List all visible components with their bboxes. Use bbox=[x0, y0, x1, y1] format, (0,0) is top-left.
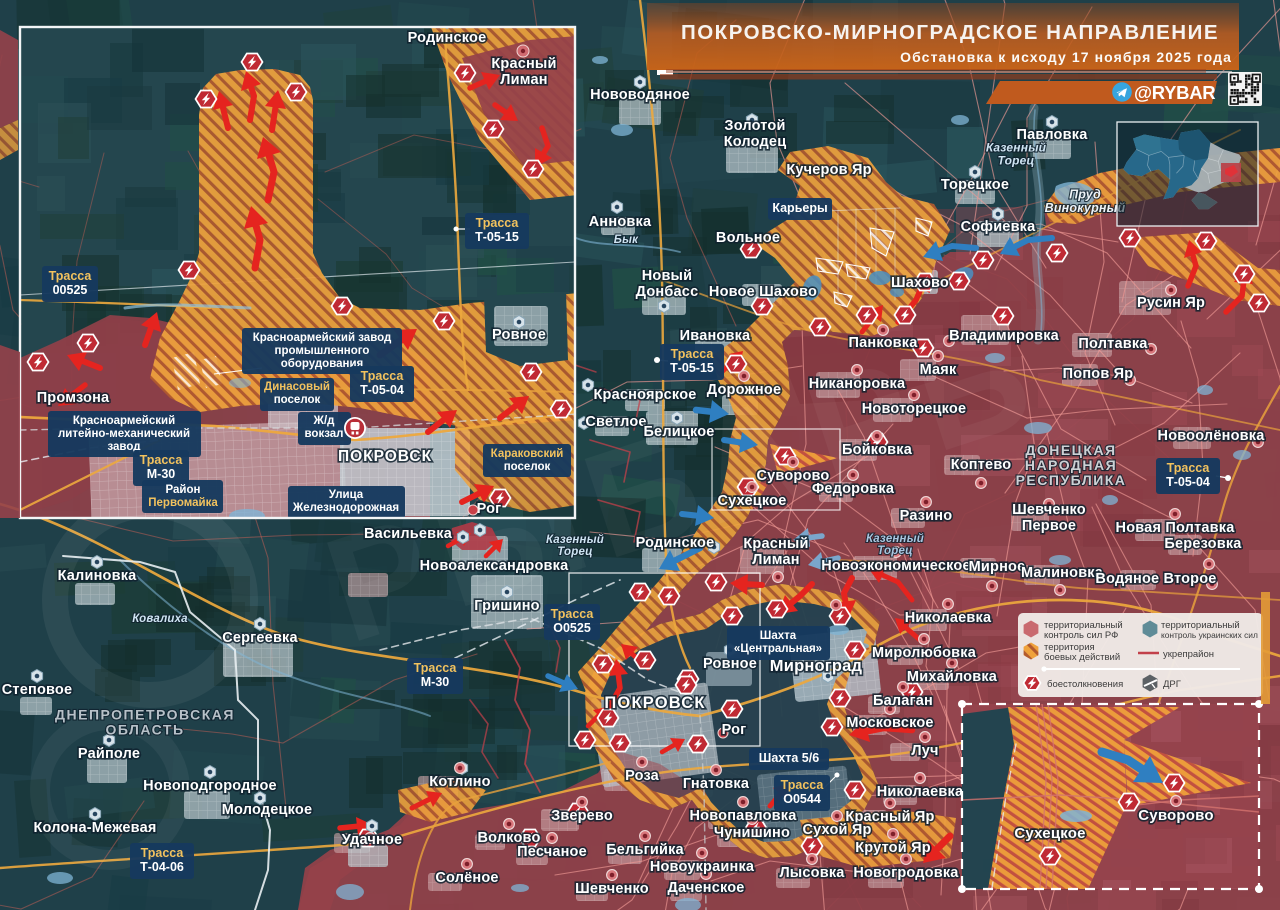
svg-text:Трасса: Трасса bbox=[551, 607, 595, 621]
svg-text:Новый: Новый bbox=[642, 268, 693, 284]
svg-text:Обстановка к исходу 17 ноября: Обстановка к исходу 17 ноября 2025 года bbox=[900, 49, 1232, 65]
svg-text:Красный: Красный bbox=[491, 56, 556, 72]
svg-text:Новоподгородное: Новоподгородное bbox=[143, 778, 277, 794]
svg-text:Нововодяное: Нововодяное bbox=[590, 87, 690, 103]
svg-text:Новоукраинка: Новоукраинка bbox=[650, 859, 755, 875]
svg-text:Новоалександровка: Новоалександровка bbox=[420, 558, 569, 574]
svg-text:ПОКРОВСК: ПОКРОВСК bbox=[604, 694, 705, 712]
svg-text:Колодец: Колодец bbox=[724, 134, 787, 150]
svg-text:Трасса: Трасса bbox=[140, 453, 184, 467]
svg-text:Трасса: Трасса bbox=[414, 661, 458, 675]
svg-text:Бык: Бык bbox=[614, 234, 639, 246]
svg-text:Коптево: Коптево bbox=[951, 457, 1012, 473]
svg-text:Т-05-04: Т-05-04 bbox=[360, 383, 404, 397]
svg-text:Железнодорожная: Железнодорожная bbox=[292, 502, 399, 514]
svg-text:Бельгийка: Бельгийка bbox=[606, 842, 684, 858]
svg-text:Николаевка: Николаевка bbox=[877, 784, 964, 800]
svg-text:Миролюбовка: Миролюбовка bbox=[872, 645, 977, 661]
svg-text:Калиновка: Калиновка bbox=[58, 568, 138, 584]
svg-text:Новое Шахово: Новое Шахово bbox=[709, 284, 817, 300]
svg-text:Балаган: Балаган bbox=[873, 693, 933, 709]
svg-text:Васильевка: Васильевка bbox=[364, 526, 453, 542]
svg-text:контроль сил РФ: контроль сил РФ bbox=[1044, 630, 1118, 641]
svg-text:Казенный: Казенный bbox=[986, 141, 1047, 155]
svg-text:М-30: М-30 bbox=[147, 467, 176, 481]
svg-text:Луч: Луч bbox=[911, 743, 938, 759]
svg-text:ДОНЕЦКАЯ: ДОНЕЦКАЯ bbox=[1025, 442, 1116, 458]
svg-text:Золотой: Золотой bbox=[724, 118, 785, 134]
svg-text:поселок: поселок bbox=[274, 394, 321, 406]
svg-text:Кучеров Яр: Кучеров Яр bbox=[786, 162, 871, 178]
svg-text:Рог: Рог bbox=[722, 722, 747, 738]
svg-text:Торецкое: Торецкое bbox=[941, 177, 1009, 193]
svg-text:Шахово: Шахово bbox=[891, 275, 949, 291]
svg-text:Гнатовка: Гнатовка bbox=[683, 776, 750, 792]
svg-text:Трасса: Трасса bbox=[49, 269, 93, 283]
svg-text:Т-05-15: Т-05-15 bbox=[670, 361, 714, 375]
svg-text:О0544: О0544 bbox=[783, 792, 821, 806]
svg-text:Т-05-15: Т-05-15 bbox=[475, 230, 519, 244]
svg-text:Суворово: Суворово bbox=[1138, 807, 1213, 824]
svg-text:Казенный: Казенный bbox=[546, 534, 604, 546]
svg-text:Анновка: Анновка bbox=[589, 214, 652, 230]
svg-text:«Центральная»: «Центральная» bbox=[734, 643, 822, 655]
svg-text:Даченское: Даченское bbox=[667, 880, 744, 896]
svg-text:Чунишино: Чунишино bbox=[714, 825, 790, 841]
svg-text:Федоровка: Федоровка bbox=[812, 481, 895, 497]
svg-text:Динасовый: Динасовый bbox=[264, 381, 330, 393]
svg-text:Сухецкое: Сухецкое bbox=[1014, 825, 1085, 842]
svg-text:Сергеевка: Сергеевка bbox=[222, 630, 298, 646]
svg-text:Водяное Второе: Водяное Второе bbox=[1095, 571, 1216, 587]
svg-text:Рог: Рог bbox=[477, 501, 502, 517]
svg-text:Шевченко: Шевченко bbox=[1012, 502, 1086, 518]
svg-text:Улица: Улица bbox=[329, 489, 364, 501]
svg-text:Бойковка: Бойковка bbox=[842, 442, 913, 458]
svg-text:укрепрайон: укрепрайон bbox=[1163, 649, 1214, 660]
svg-text:Сухецкое: Сухецкое bbox=[718, 493, 787, 509]
svg-text:00525: 00525 bbox=[53, 283, 88, 297]
svg-text:Шевченко: Шевченко bbox=[575, 881, 649, 897]
svg-text:Трасса: Трасса bbox=[671, 347, 715, 361]
svg-text:литейно-механический: литейно-механический bbox=[58, 428, 190, 440]
svg-text:Вольное: Вольное bbox=[716, 230, 780, 246]
svg-text:Новогродовка: Новогродовка bbox=[853, 865, 959, 881]
svg-text:поселок: поселок bbox=[504, 461, 551, 473]
svg-text:Песчаное: Песчаное bbox=[517, 844, 587, 860]
svg-text:НАРОДНАЯ: НАРОДНАЯ bbox=[1025, 457, 1117, 473]
svg-text:Лиман: Лиман bbox=[752, 552, 799, 568]
svg-text:Караковский: Караковский bbox=[491, 448, 564, 460]
svg-text:Лиман: Лиман bbox=[500, 72, 547, 88]
svg-text:Донбасс: Донбасс bbox=[636, 284, 699, 300]
svg-text:Родинское: Родинское bbox=[636, 535, 715, 551]
svg-text:Новоолёновка: Новоолёновка bbox=[1158, 428, 1266, 444]
svg-text:боестолкновения: боестолкновения bbox=[1047, 679, 1123, 690]
svg-text:Пруд: Пруд bbox=[1069, 187, 1101, 201]
svg-text:Трасса: Трасса bbox=[361, 369, 405, 383]
svg-text:Торец: Торец bbox=[877, 545, 912, 557]
svg-text:Малиновка: Малиновка bbox=[1021, 565, 1104, 581]
svg-text:Шахта: Шахта bbox=[760, 630, 797, 642]
svg-text:Разино: Разино bbox=[900, 508, 953, 524]
svg-text:М-30: М-30 bbox=[421, 675, 450, 689]
svg-text:Крутой Яр: Крутой Яр bbox=[855, 840, 931, 856]
svg-text:промышленного: промышленного bbox=[275, 345, 370, 357]
svg-text:Зверево: Зверево bbox=[551, 808, 613, 824]
svg-text:ДРГ: ДРГ bbox=[1163, 679, 1181, 690]
svg-text:Красноармейский: Красноармейский bbox=[73, 415, 175, 427]
svg-text:Мирное: Мирное bbox=[969, 559, 1026, 575]
svg-text:Удачное: Удачное bbox=[342, 832, 403, 848]
svg-text:Никаноровка: Никаноровка bbox=[809, 376, 906, 392]
svg-text:Красноярское: Красноярское bbox=[593, 387, 696, 403]
svg-text:Новоэкономическое: Новоэкономическое bbox=[821, 558, 970, 574]
svg-text:О0525: О0525 bbox=[553, 621, 591, 635]
svg-text:Сухой Яр: Сухой Яр bbox=[802, 822, 871, 838]
svg-text:Попов Яр: Попов Яр bbox=[1063, 366, 1134, 382]
svg-text:Трасса: Трасса bbox=[781, 778, 825, 792]
svg-text:Казенный: Казенный bbox=[866, 533, 924, 545]
svg-text:Райполе: Райполе bbox=[78, 746, 140, 762]
svg-text:Белицкое: Белицкое bbox=[643, 424, 714, 440]
svg-text:Трасса: Трасса bbox=[1167, 461, 1211, 475]
svg-text:Березовка: Березовка bbox=[1164, 536, 1242, 552]
svg-text:Торец: Торец bbox=[557, 546, 592, 558]
svg-text:Родинское: Родинское bbox=[408, 30, 487, 46]
svg-text:Солёное: Солёное bbox=[435, 870, 498, 886]
svg-text:Трасса: Трасса bbox=[141, 846, 185, 860]
svg-text:боевых действий: боевых действий bbox=[1044, 652, 1120, 663]
svg-text:Роза: Роза bbox=[625, 768, 660, 784]
svg-text:Ж/д: Ж/д bbox=[313, 415, 336, 427]
svg-text:Котлино: Котлино bbox=[429, 774, 490, 790]
svg-text:Московское: Московское bbox=[846, 715, 933, 731]
svg-text:Красный: Красный bbox=[743, 536, 808, 552]
svg-text:Т-04-06: Т-04-06 bbox=[140, 860, 184, 874]
svg-text:Шахта 5/6: Шахта 5/6 bbox=[759, 751, 819, 765]
svg-text:Карьеры: Карьеры bbox=[772, 201, 827, 215]
svg-text:Ровное: Ровное bbox=[492, 327, 546, 343]
svg-text:Полтавка: Полтавка bbox=[1078, 336, 1148, 352]
svg-text:Лысовка: Лысовка bbox=[779, 865, 845, 881]
svg-text:ДНЕПРОПЕТРОВСКАЯ: ДНЕПРОПЕТРОВСКАЯ bbox=[55, 706, 235, 722]
svg-text:Волково: Волково bbox=[477, 830, 540, 846]
svg-text:Дорожное: Дорожное bbox=[707, 382, 781, 398]
svg-text:Красноармейский завод: Красноармейский завод bbox=[253, 332, 392, 344]
svg-text:Ивановка: Ивановка bbox=[680, 328, 751, 344]
svg-text:Район: Район bbox=[166, 484, 201, 496]
svg-text:Промзона: Промзона bbox=[37, 390, 110, 406]
svg-text:контроль украинских сил: контроль украинских сил bbox=[1161, 630, 1258, 640]
svg-text:РЕСПУБЛИКА: РЕСПУБЛИКА bbox=[1016, 472, 1127, 488]
svg-text:Степовое: Степовое bbox=[2, 682, 73, 698]
svg-text:вокзал: вокзал bbox=[305, 428, 344, 440]
svg-text:Михайловка: Михайловка bbox=[907, 669, 998, 685]
svg-text:ОБЛАСТЬ: ОБЛАСТЬ bbox=[105, 722, 184, 738]
svg-text:Первомайка: Первомайка bbox=[148, 497, 218, 509]
svg-text:@RYBAR: @RYBAR bbox=[1134, 82, 1215, 103]
svg-text:Светлое: Светлое bbox=[585, 414, 646, 430]
svg-text:Николаевка: Николаевка bbox=[905, 610, 992, 626]
svg-text:Новая Полтавка: Новая Полтавка bbox=[1116, 520, 1236, 536]
svg-text:Русин Яр: Русин Яр bbox=[1137, 295, 1205, 311]
svg-text:Первое: Первое bbox=[1022, 518, 1076, 534]
svg-text:Колона-Межевая: Колона-Межевая bbox=[33, 820, 156, 836]
svg-text:Гришино: Гришино bbox=[474, 598, 539, 614]
svg-text:ПОКРОВСКО-МИРНОГРАДСКОЕ НАПРАВ: ПОКРОВСКО-МИРНОГРАДСКОЕ НАПРАВЛЕНИЕ bbox=[681, 21, 1219, 44]
svg-text:Панковка: Панковка bbox=[848, 335, 918, 351]
svg-text:Маяк: Маяк bbox=[920, 362, 957, 378]
svg-text:Ковалиха: Ковалиха bbox=[132, 613, 188, 625]
svg-text:Молодецкое: Молодецкое bbox=[222, 802, 312, 818]
svg-text:Трасса: Трасса bbox=[476, 216, 520, 230]
svg-text:Винокурный: Винокурный bbox=[1045, 201, 1126, 215]
svg-text:Владимировка: Владимировка bbox=[949, 328, 1060, 344]
svg-text:Т-05-04: Т-05-04 bbox=[1166, 475, 1210, 489]
svg-text:Новоторецкое: Новоторецкое bbox=[862, 401, 967, 417]
svg-text:ПОКРОВСК: ПОКРОВСК bbox=[338, 448, 432, 465]
svg-text:Софиевка: Софиевка bbox=[961, 219, 1037, 235]
svg-text:Торец: Торец bbox=[998, 153, 1035, 167]
